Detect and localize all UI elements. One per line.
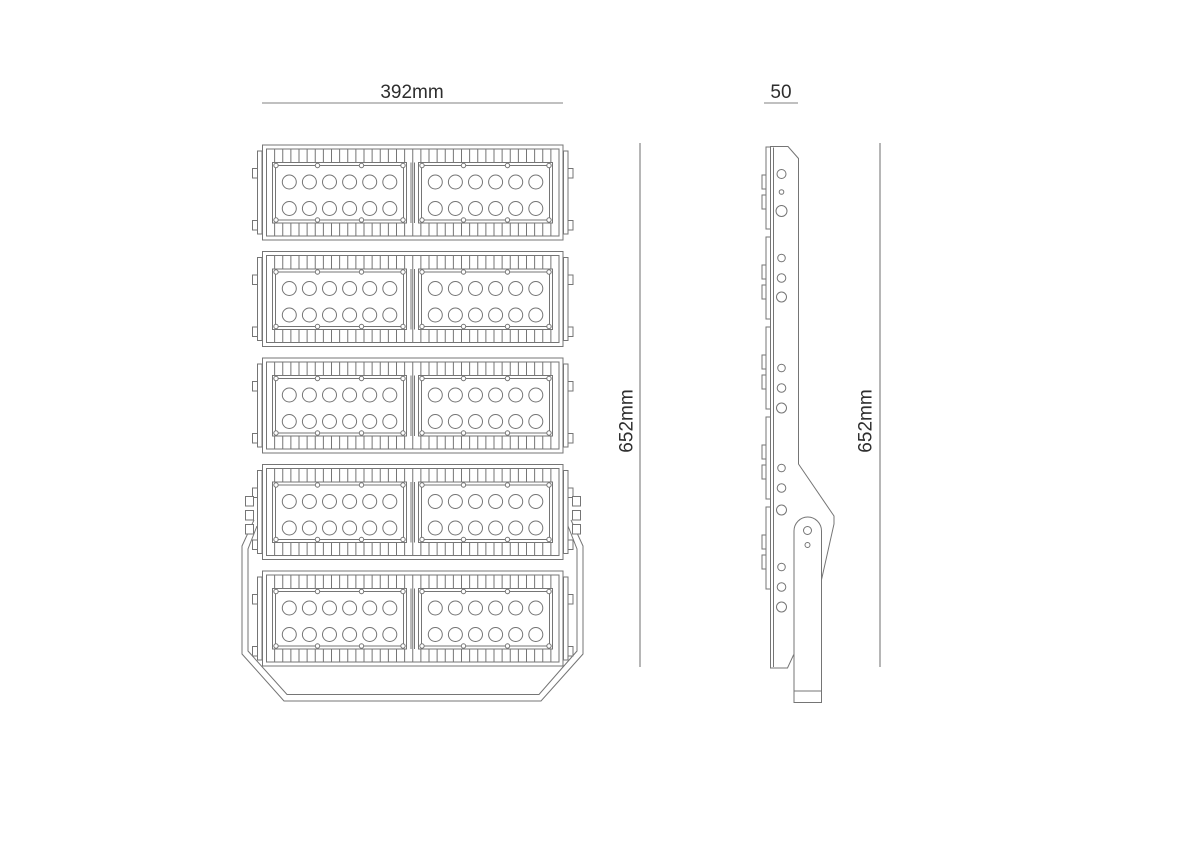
frame-screw [359, 163, 363, 167]
front-strip-segment [766, 417, 771, 499]
led-circle [469, 628, 483, 642]
led-circle [363, 282, 377, 296]
led-circle [383, 175, 397, 189]
module-row [253, 252, 574, 347]
side-tab-right [568, 647, 573, 657]
led-circle [343, 495, 357, 509]
mounting-bracket-arm [794, 517, 822, 703]
led-circle [448, 308, 462, 322]
mounting-hole [777, 170, 786, 179]
frame-screw [401, 431, 405, 435]
frame-screw [420, 644, 424, 648]
module-row [253, 465, 574, 560]
frame-screw [547, 270, 551, 274]
led-circle [489, 282, 503, 296]
frame-screw [315, 483, 319, 487]
side-tab-right [568, 327, 573, 337]
side-strip-right [564, 471, 569, 554]
led-circle [469, 521, 483, 535]
mounting-hole [777, 292, 787, 302]
led-circle [302, 202, 316, 216]
frame-screw [420, 431, 424, 435]
side-strip-tab [762, 555, 766, 569]
frame-screw [505, 483, 509, 487]
led-circle [363, 521, 377, 535]
led-circle [363, 601, 377, 615]
module-row [253, 358, 574, 453]
mounting-hole [777, 583, 786, 592]
side-tab-left [253, 327, 258, 337]
mounting-hole [776, 206, 787, 217]
led-circle [302, 495, 316, 509]
led-circle [363, 628, 377, 642]
led-circle [383, 495, 397, 509]
side-tab-left [253, 169, 258, 179]
frame-screw [274, 218, 278, 222]
frame-screw [461, 644, 465, 648]
frame-screw [420, 218, 424, 222]
frame-screw [547, 431, 551, 435]
mounting-hole [779, 190, 784, 195]
side-tab-left [253, 221, 258, 231]
led-circle [302, 628, 316, 642]
mounting-hole [778, 464, 786, 472]
mounting-hole [777, 403, 787, 413]
led-circle [383, 628, 397, 642]
hinge-tab-left [246, 511, 254, 521]
frame-screw [547, 376, 551, 380]
led-circle [428, 628, 442, 642]
led-circle [363, 388, 377, 402]
side-strip-tab [762, 265, 766, 279]
led-circle [282, 628, 296, 642]
led-circle [323, 175, 337, 189]
led-circle [363, 175, 377, 189]
led-circle [469, 601, 483, 615]
front-strip-segment [766, 507, 771, 589]
frame-screw [505, 644, 509, 648]
led-circle [509, 308, 523, 322]
led-circle [529, 388, 543, 402]
frame-screw [461, 589, 465, 593]
hinge-tab-left [246, 497, 254, 507]
side-strip-left [258, 258, 263, 341]
frame-screw [547, 589, 551, 593]
led-circle [509, 601, 523, 615]
side-height-dimension-label: 652mm [856, 389, 877, 452]
led-circle [282, 521, 296, 535]
led-circle [323, 601, 337, 615]
led-circle [302, 308, 316, 322]
led-circle [343, 282, 357, 296]
side-tab-left [253, 647, 258, 657]
side-strip-right [564, 151, 569, 234]
side-view [762, 147, 834, 703]
frame-screw [401, 589, 405, 593]
led-circle [428, 601, 442, 615]
frame-screw [420, 163, 424, 167]
frame-screw [274, 644, 278, 648]
led-circle [509, 282, 523, 296]
led-circle [343, 601, 357, 615]
frame-screw [547, 537, 551, 541]
led-circle [282, 415, 296, 429]
frame-screw [274, 270, 278, 274]
mounting-hole [777, 274, 786, 283]
led-module [273, 269, 407, 330]
frame-screw [274, 163, 278, 167]
frame-screw [547, 163, 551, 167]
frame-screw [315, 537, 319, 541]
bracket-arm-hole [805, 543, 810, 548]
led-circle [383, 202, 397, 216]
led-circle [302, 415, 316, 429]
led-circle [383, 415, 397, 429]
led-circle [343, 308, 357, 322]
frame-screw [505, 537, 509, 541]
side-tab-left [253, 540, 258, 550]
frame-screw [359, 589, 363, 593]
led-circle [323, 521, 337, 535]
led-circle [323, 628, 337, 642]
led-circle [428, 175, 442, 189]
led-circle [529, 202, 543, 216]
led-circle [448, 521, 462, 535]
led-circle [383, 601, 397, 615]
side-tab-left [253, 595, 258, 605]
led-module [419, 269, 553, 330]
led-circle [529, 521, 543, 535]
frame-screw [461, 270, 465, 274]
side-tab-right [568, 434, 573, 444]
led-circle [323, 202, 337, 216]
frame-screw [315, 163, 319, 167]
side-strip-tab [762, 375, 766, 389]
led-circle [509, 388, 523, 402]
frame-screw [359, 218, 363, 222]
side-strip-tab [762, 355, 766, 369]
mounting-hole [778, 563, 786, 571]
led-circle [363, 495, 377, 509]
front-strip-segment [766, 147, 771, 229]
side-strip-tab [762, 465, 766, 479]
frame-screw [461, 218, 465, 222]
side-strip-tab [762, 195, 766, 209]
led-circle [529, 601, 543, 615]
frame-screw [359, 431, 363, 435]
frame-screw [420, 376, 424, 380]
frame-screw [315, 644, 319, 648]
frame-screw [401, 218, 405, 222]
frame-screw [505, 324, 509, 328]
led-circle [469, 202, 483, 216]
led-circle [383, 282, 397, 296]
frame-screw [461, 376, 465, 380]
led-circle [282, 495, 296, 509]
led-module [273, 163, 407, 224]
led-circle [428, 388, 442, 402]
frame-screw [505, 270, 509, 274]
led-circle [489, 388, 503, 402]
led-circle [343, 388, 357, 402]
frame-screw [505, 163, 509, 167]
led-circle [489, 308, 503, 322]
led-circle [489, 521, 503, 535]
side-strip-left [258, 151, 263, 234]
led-circle [448, 202, 462, 216]
side-strip-left [258, 364, 263, 447]
side-strip-right [564, 577, 569, 660]
frame-screw [420, 270, 424, 274]
frame-screw [401, 376, 405, 380]
led-circle [428, 495, 442, 509]
frame-screw [274, 324, 278, 328]
led-circle [302, 175, 316, 189]
led-circle [489, 601, 503, 615]
frame-screw [547, 324, 551, 328]
module-row [253, 145, 574, 240]
led-circle [282, 282, 296, 296]
frame-screw [315, 376, 319, 380]
led-circle [323, 495, 337, 509]
frame-screw [401, 537, 405, 541]
led-circle [363, 415, 377, 429]
frame-screw [274, 431, 278, 435]
frame-screw [461, 483, 465, 487]
hinge-tab-right [573, 525, 581, 535]
side-strip-right [564, 364, 569, 447]
frame-screw [401, 270, 405, 274]
led-circle [282, 388, 296, 402]
mounting-hole [777, 505, 787, 515]
led-circle [489, 202, 503, 216]
frame-screw [401, 644, 405, 648]
led-circle [363, 202, 377, 216]
frame-screw [315, 270, 319, 274]
led-module [419, 376, 553, 437]
frame-screw [315, 589, 319, 593]
led-circle [302, 601, 316, 615]
led-circle [529, 495, 543, 509]
led-circle [323, 415, 337, 429]
mounting-hole [777, 384, 786, 393]
frame-screw [274, 483, 278, 487]
led-circle [282, 308, 296, 322]
led-circle [428, 282, 442, 296]
led-circle [489, 628, 503, 642]
led-circle [383, 388, 397, 402]
led-circle [489, 175, 503, 189]
side-strip-tab [762, 535, 766, 549]
led-circle [448, 282, 462, 296]
led-circle [469, 388, 483, 402]
led-circle [529, 415, 543, 429]
front-strip-segment [766, 327, 771, 409]
side-strip-tab [762, 175, 766, 189]
frame-screw [505, 376, 509, 380]
side-tab-left [253, 382, 258, 392]
led-circle [469, 495, 483, 509]
led-circle [428, 202, 442, 216]
frame-screw [547, 218, 551, 222]
frame-screw [505, 589, 509, 593]
led-circle [509, 415, 523, 429]
floodlight-technical-drawing: 392mm 50 652mm 652mm [0, 0, 1191, 842]
led-circle [428, 521, 442, 535]
led-circle [343, 415, 357, 429]
led-circle [323, 282, 337, 296]
frame-screw [420, 589, 424, 593]
side-tab-right [568, 595, 573, 605]
led-module [419, 163, 553, 224]
led-circle [323, 388, 337, 402]
led-circle [383, 521, 397, 535]
frame-screw [359, 483, 363, 487]
front-strip-segment [766, 237, 771, 319]
led-circle [448, 628, 462, 642]
led-circle [529, 308, 543, 322]
led-circle [469, 415, 483, 429]
led-circle [448, 415, 462, 429]
led-circle [302, 388, 316, 402]
led-circle [343, 202, 357, 216]
side-strip-right [564, 258, 569, 341]
front-height-dimension-label: 652mm [617, 389, 638, 452]
side-tab-right [568, 275, 573, 285]
front-view [242, 145, 583, 701]
side-strip-left [258, 471, 263, 554]
frame-screw [359, 376, 363, 380]
module-row [253, 571, 574, 666]
led-circle [469, 308, 483, 322]
side-tab-left [253, 275, 258, 285]
led-circle [343, 521, 357, 535]
led-circle [489, 495, 503, 509]
led-circle [448, 601, 462, 615]
frame-screw [505, 218, 509, 222]
frame-screw [359, 644, 363, 648]
led-circle [529, 628, 543, 642]
led-module [419, 482, 553, 543]
led-circle [282, 601, 296, 615]
frame-screw [274, 589, 278, 593]
led-circle [343, 628, 357, 642]
frame-screw [420, 537, 424, 541]
frame-screw [401, 324, 405, 328]
mounting-hole [778, 364, 786, 372]
technical-drawing-page: 392mm 50 652mm 652mm [0, 0, 1191, 842]
frame-screw [461, 324, 465, 328]
led-circle [282, 202, 296, 216]
side-tab-right [568, 382, 573, 392]
side-strip-tabs [762, 175, 766, 569]
front-width-dimension-label: 392mm [380, 82, 443, 103]
frame-screw [401, 163, 405, 167]
led-module [273, 589, 407, 650]
led-circle [509, 521, 523, 535]
frame-screw [461, 431, 465, 435]
led-module [419, 589, 553, 650]
led-circle [489, 415, 503, 429]
led-circle [529, 282, 543, 296]
led-circle [509, 495, 523, 509]
mounting-hole [777, 484, 786, 493]
frame-screw [420, 324, 424, 328]
led-circle [383, 308, 397, 322]
side-strip-tab [762, 445, 766, 459]
frame-screw [359, 537, 363, 541]
side-width-dimension-label: 50 [770, 82, 791, 103]
led-circle [469, 175, 483, 189]
hinge-tab-right [573, 511, 581, 521]
mounting-hole [778, 254, 786, 262]
led-circle [509, 202, 523, 216]
frame-screw [315, 218, 319, 222]
led-circle [509, 628, 523, 642]
led-module [273, 482, 407, 543]
side-tab-left [253, 434, 258, 444]
bracket-arm-hole [804, 527, 812, 535]
led-circle [448, 388, 462, 402]
frame-screw [359, 270, 363, 274]
frame-screw [274, 537, 278, 541]
side-tab-right [568, 169, 573, 179]
side-front-strip [766, 147, 771, 589]
side-tab-right [568, 540, 573, 550]
led-circle [509, 175, 523, 189]
led-circle [343, 175, 357, 189]
frame-screw [505, 431, 509, 435]
frame-screw [461, 163, 465, 167]
led-circle [302, 521, 316, 535]
side-strip-tab [762, 285, 766, 299]
led-circle [363, 308, 377, 322]
led-module [273, 376, 407, 437]
frame-screw [420, 483, 424, 487]
led-circle [282, 175, 296, 189]
led-circle [302, 282, 316, 296]
frame-screw [359, 324, 363, 328]
led-circle [323, 308, 337, 322]
side-strip-left [258, 577, 263, 660]
frame-screw [401, 483, 405, 487]
led-circle [529, 175, 543, 189]
hinge-tab-right [573, 497, 581, 507]
frame-screw [547, 483, 551, 487]
hinge-tab-left [246, 525, 254, 535]
side-tab-right [568, 221, 573, 231]
frame-screw [274, 376, 278, 380]
led-circle [469, 282, 483, 296]
frame-screw [315, 324, 319, 328]
led-circle [448, 175, 462, 189]
frame-screw [461, 537, 465, 541]
led-circle [428, 415, 442, 429]
frame-screw [547, 644, 551, 648]
mounting-hole [777, 602, 787, 612]
frame-screw [315, 431, 319, 435]
led-circle [448, 495, 462, 509]
led-circle [428, 308, 442, 322]
